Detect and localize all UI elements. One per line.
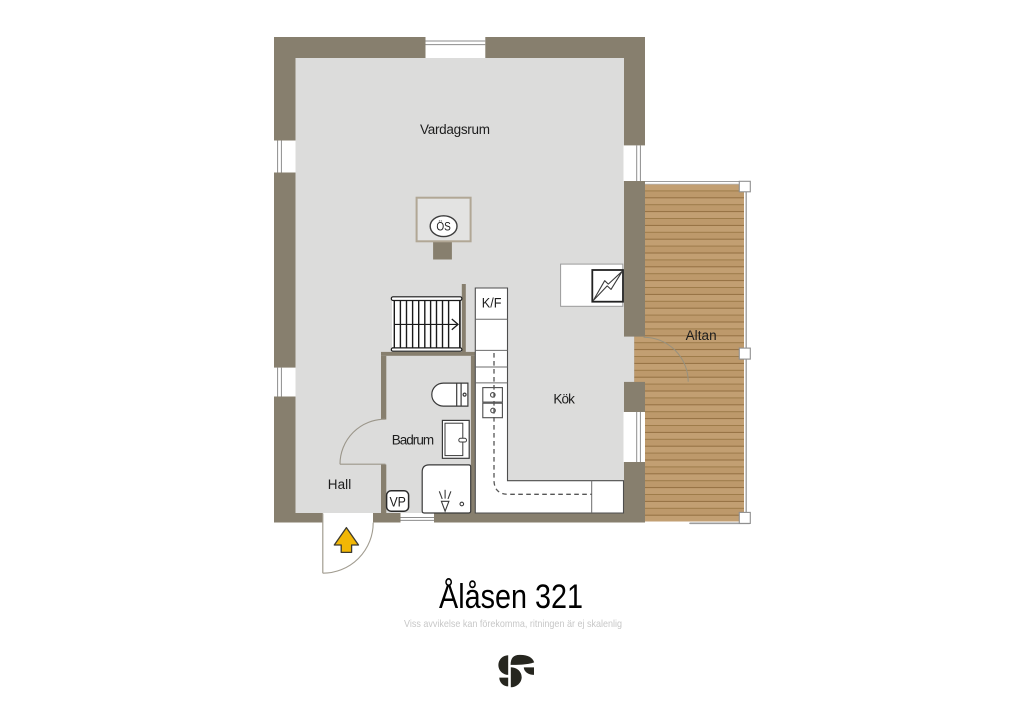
svg-text:ÖS: ÖS — [436, 221, 451, 233]
svg-text:Badrum: Badrum — [392, 433, 434, 448]
svg-text:Viss avvikelse kan förekomma,: Viss avvikelse kan förekomma, ritningen … — [404, 618, 622, 630]
svg-text:Ålåsen 321: Ålåsen 321 — [439, 577, 583, 616]
svg-text:Hall: Hall — [328, 477, 351, 492]
svg-text:Vardagsrum: Vardagsrum — [420, 122, 490, 137]
svg-text:Kök: Kök — [553, 391, 575, 406]
svg-text:VP: VP — [389, 494, 406, 509]
svg-text:Altan: Altan — [686, 328, 717, 343]
svg-text:K/F: K/F — [482, 296, 502, 311]
